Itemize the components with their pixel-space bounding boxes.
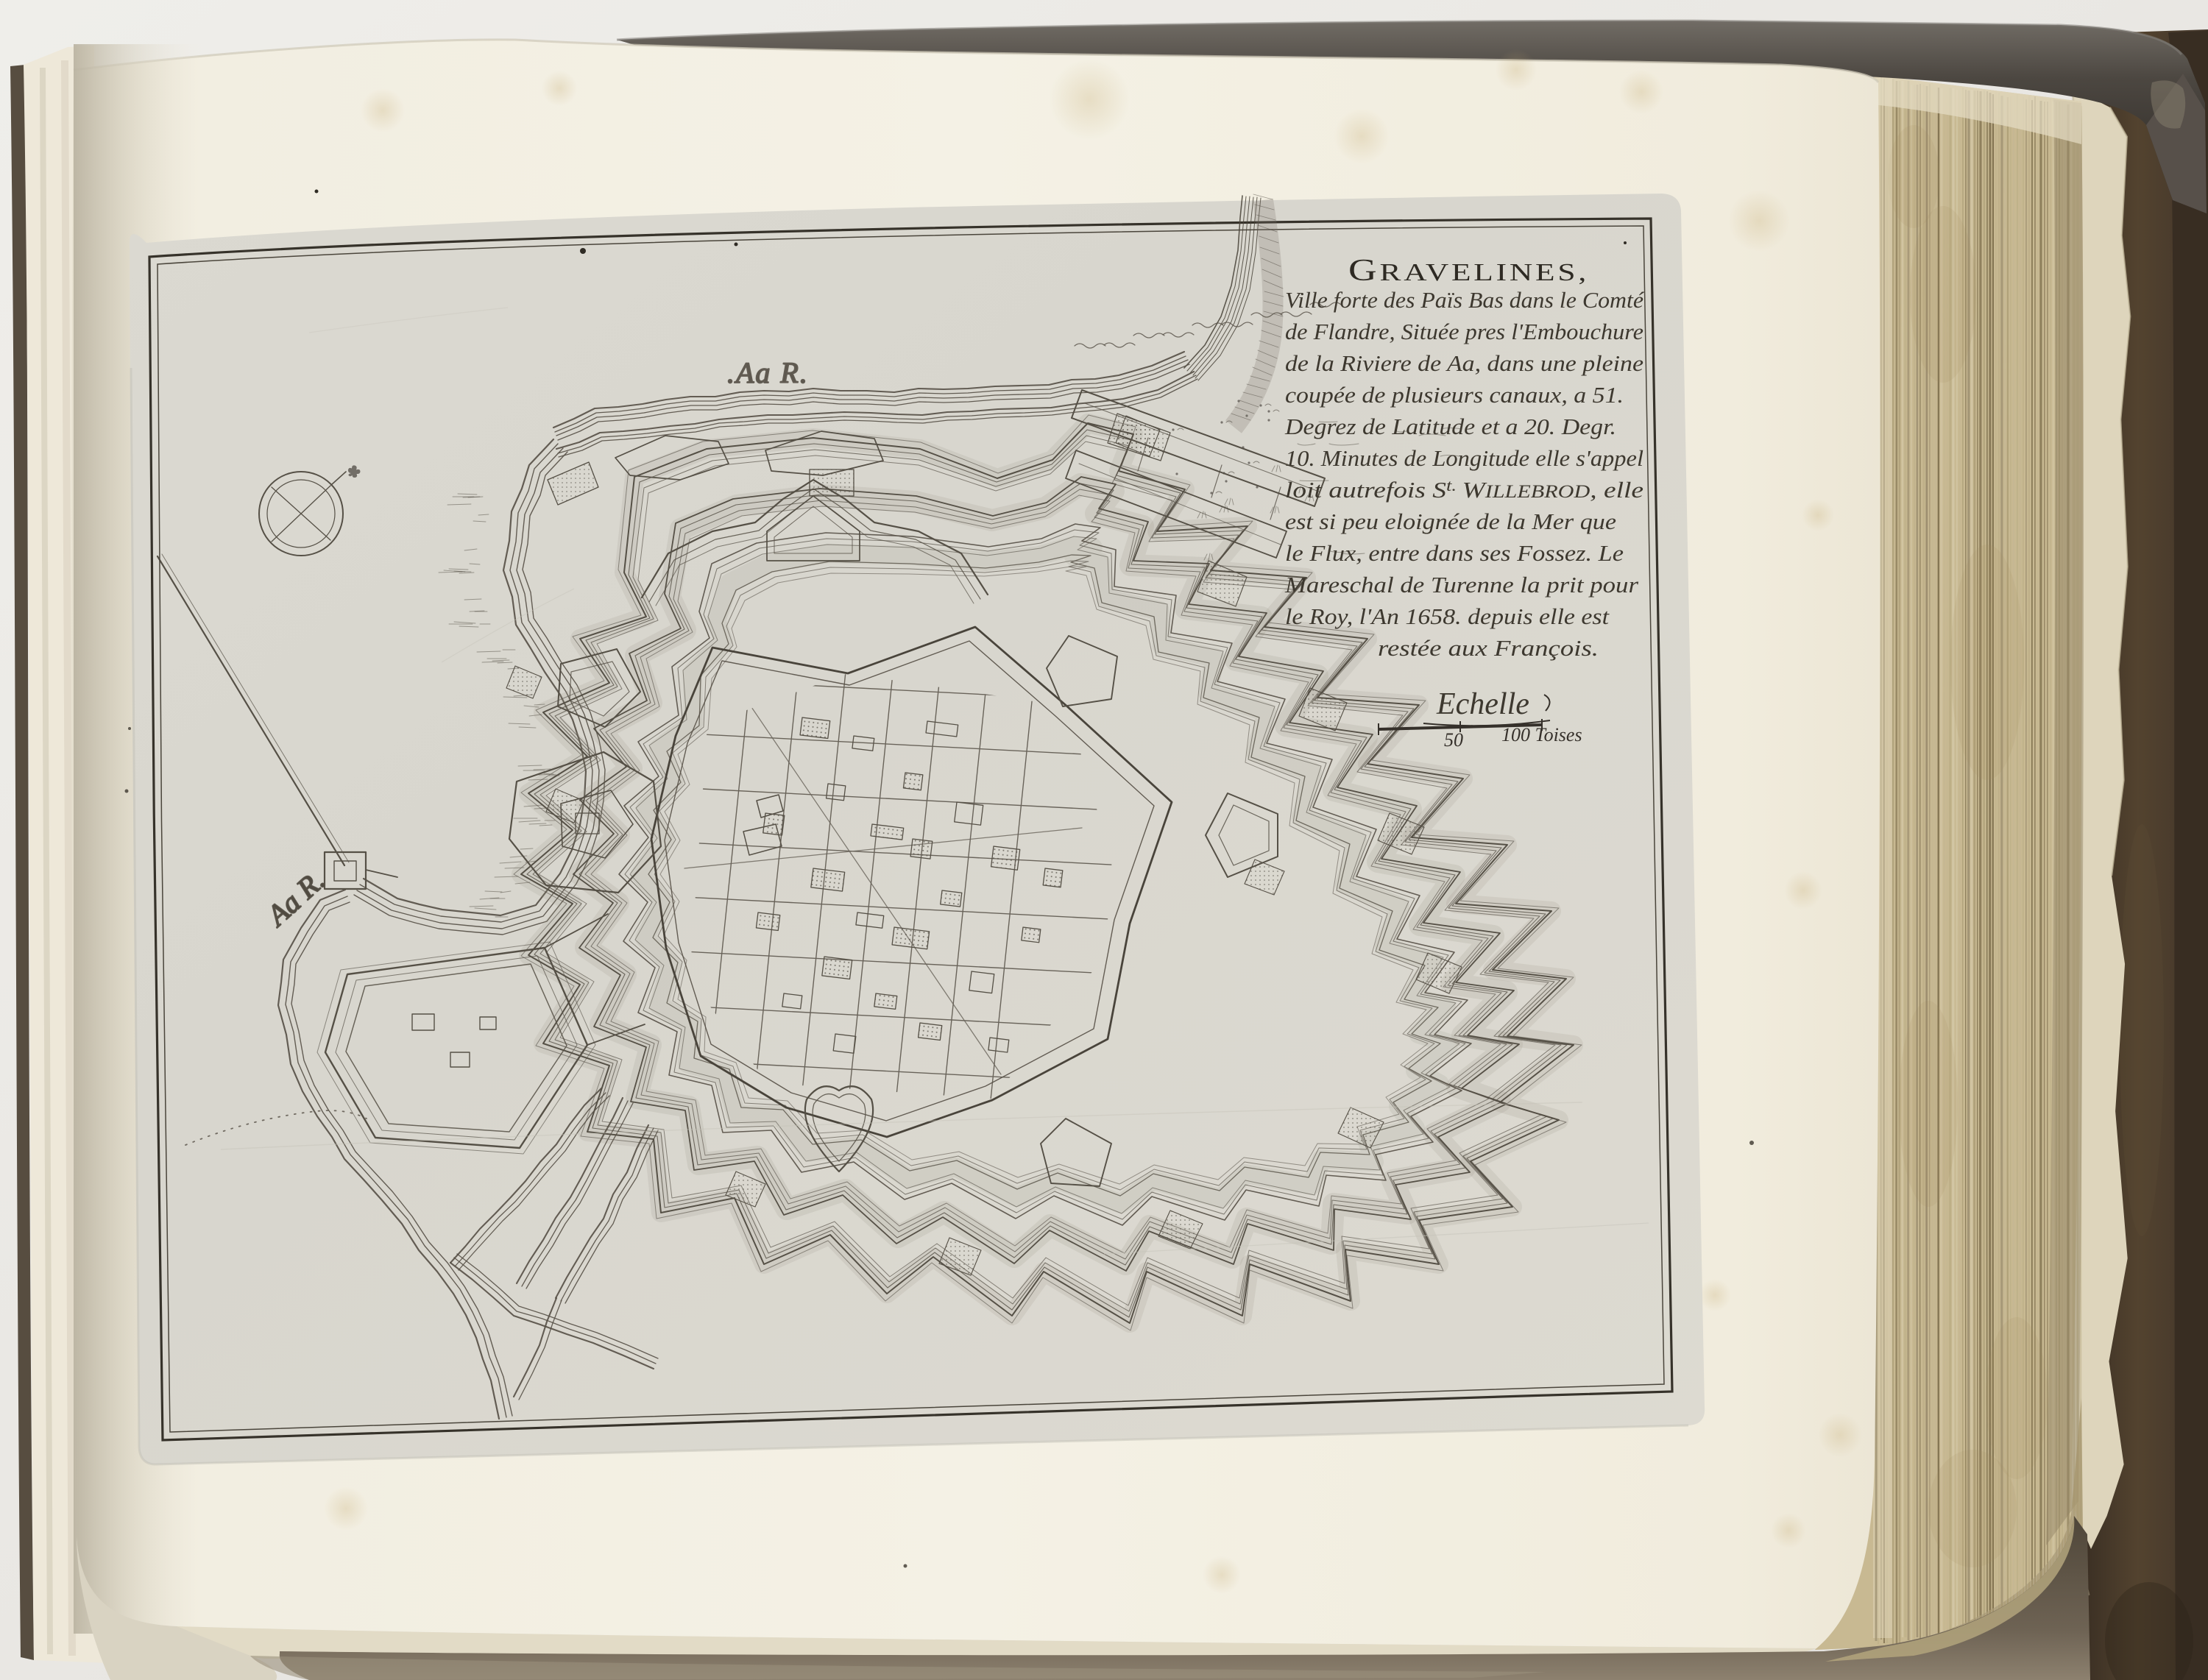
svg-text:coupée de plusieurs canaux, a: coupée de plusieurs canaux, a 51. — [1285, 382, 1624, 408]
svg-text:de la Riviere de Aa, dans une: de la Riviere de Aa, dans une pleine — [1285, 350, 1643, 376]
svg-text:10. Minutes de Longitude elle: 10. Minutes de Longitude elle s'appel — [1285, 445, 1643, 471]
svg-text:Ville forte des Païs Bas dans: Ville forte des Païs Bas dans le Comté — [1285, 287, 1644, 313]
svg-text:Mareschal de Turenne la prit p: Mareschal de Turenne la prit pour — [1284, 572, 1639, 598]
svg-text:le Roy, l'An 1658. depuis elle: le Roy, l'An 1658. depuis elle est — [1285, 603, 1610, 629]
svg-text:GRAVELINES,: GRAVELINES, — [1348, 254, 1589, 288]
svg-text:100 Toises: 100 Toises — [1501, 724, 1582, 745]
svg-text:restée aux François.: restée aux François. — [1378, 635, 1599, 661]
svg-text:de Flandre, Située pres l'Embo: de Flandre, Située pres l'Embouchure — [1285, 319, 1643, 344]
svg-text:loit autrefois St. WILLEBROD,: loit autrefois St. WILLEBROD, elle — [1285, 476, 1643, 503]
svg-text:Degrez de Latitude et a 20. De: Degrez de Latitude et a 20. Degr. — [1284, 414, 1616, 439]
svg-text:50: 50 — [1444, 729, 1463, 751]
svg-text:le Flux, entre dans ses Fossez: le Flux, entre dans ses Fossez. Le — [1285, 540, 1624, 566]
svg-text:Echelle: Echelle — [1436, 687, 1529, 721]
svg-text:.Aa R.: .Aa R. — [727, 356, 809, 389]
svg-text:est si peu eloignée de la Mer: est si peu eloignée de la Mer que — [1285, 508, 1616, 534]
